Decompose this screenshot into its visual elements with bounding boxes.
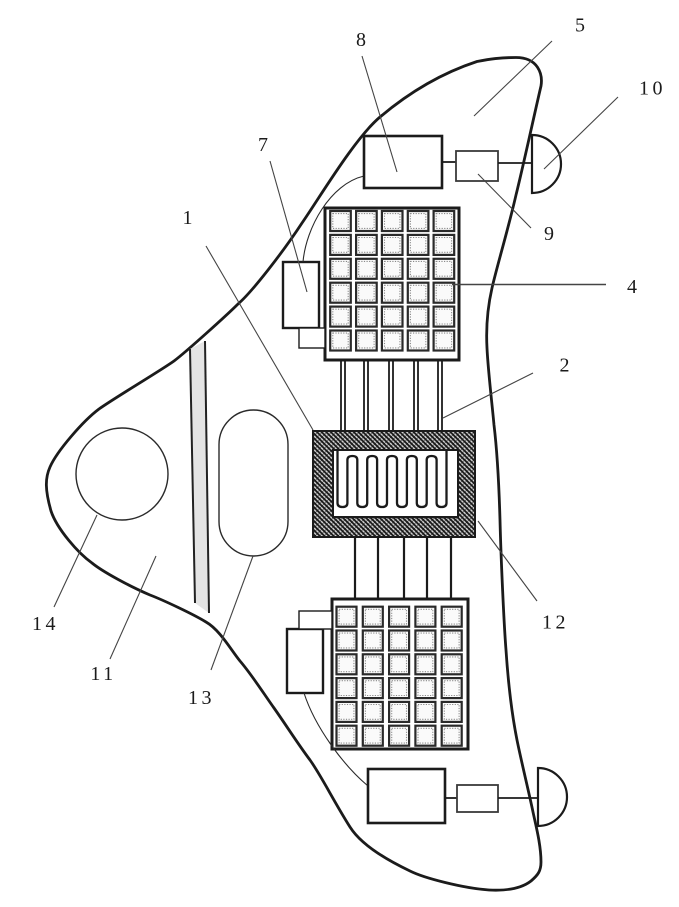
svg-text:14: 14 <box>32 613 59 635</box>
svg-text:13: 13 <box>188 687 215 709</box>
svg-text:10: 10 <box>639 78 666 100</box>
svg-text:5: 5 <box>575 15 585 37</box>
svg-text:12: 12 <box>542 612 569 634</box>
svg-text:8: 8 <box>356 29 366 51</box>
svg-text:9: 9 <box>544 223 554 245</box>
svg-text:11: 11 <box>90 663 116 685</box>
svg-text:4: 4 <box>627 276 637 298</box>
svg-text:7: 7 <box>258 134 268 156</box>
svg-text:2: 2 <box>560 355 570 377</box>
svg-text:1: 1 <box>183 207 193 229</box>
